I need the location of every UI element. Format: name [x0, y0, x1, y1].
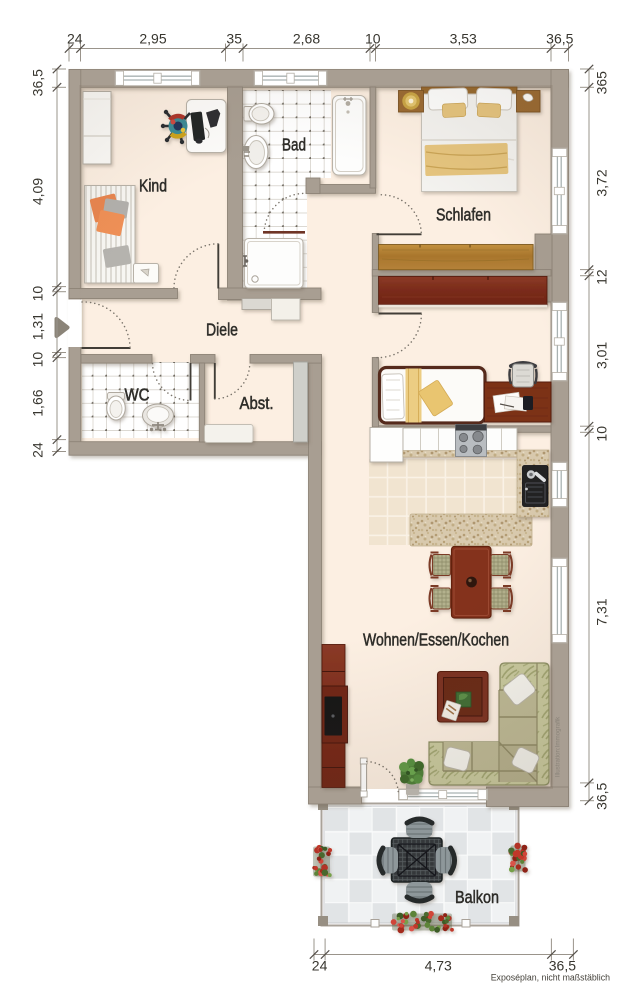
svg-text:24: 24	[30, 442, 46, 458]
svg-text:7,31: 7,31	[594, 598, 610, 625]
svg-text:Abst.: Abst.	[240, 393, 274, 413]
svg-text:Exposéplan, nicht maßstäblich: Exposéplan, nicht maßstäblich	[491, 973, 610, 983]
svg-text:2,95: 2,95	[139, 31, 166, 47]
svg-text:36,5: 36,5	[30, 69, 46, 96]
svg-text:Schlafen: Schlafen	[436, 205, 491, 225]
svg-text:35: 35	[226, 31, 242, 47]
svg-text:10: 10	[365, 31, 381, 47]
svg-text:36,5: 36,5	[546, 31, 573, 47]
svg-text:Wohnen/Essen/Kochen: Wohnen/Essen/Kochen	[363, 630, 509, 650]
svg-text:365: 365	[594, 71, 610, 95]
svg-text:36,5: 36,5	[549, 958, 576, 974]
svg-text:36,5: 36,5	[594, 782, 610, 809]
svg-text:24: 24	[312, 958, 328, 974]
svg-text:Kind: Kind	[139, 176, 167, 196]
svg-text:2,68: 2,68	[293, 31, 320, 47]
svg-text:4,73: 4,73	[425, 958, 452, 974]
svg-text:1,31: 1,31	[30, 313, 46, 340]
svg-text:Balkon: Balkon	[455, 887, 499, 907]
svg-text:1,66: 1,66	[30, 389, 46, 416]
svg-text:4,09: 4,09	[30, 178, 46, 205]
svg-text:10: 10	[30, 352, 46, 368]
svg-text:24: 24	[67, 31, 83, 47]
svg-text:10: 10	[594, 426, 610, 442]
svg-text:12: 12	[594, 269, 610, 285]
svg-text:Bad: Bad	[282, 135, 306, 155]
svg-text:Illustration:Immografik: Illustration:Immografik	[555, 716, 562, 777]
svg-text:Diele: Diele	[206, 320, 238, 340]
svg-text:3,53: 3,53	[450, 31, 477, 47]
svg-text:3,01: 3,01	[594, 342, 610, 369]
svg-text:10: 10	[30, 286, 46, 302]
svg-text:3,72: 3,72	[594, 169, 610, 196]
svg-text:WC: WC	[125, 385, 150, 405]
